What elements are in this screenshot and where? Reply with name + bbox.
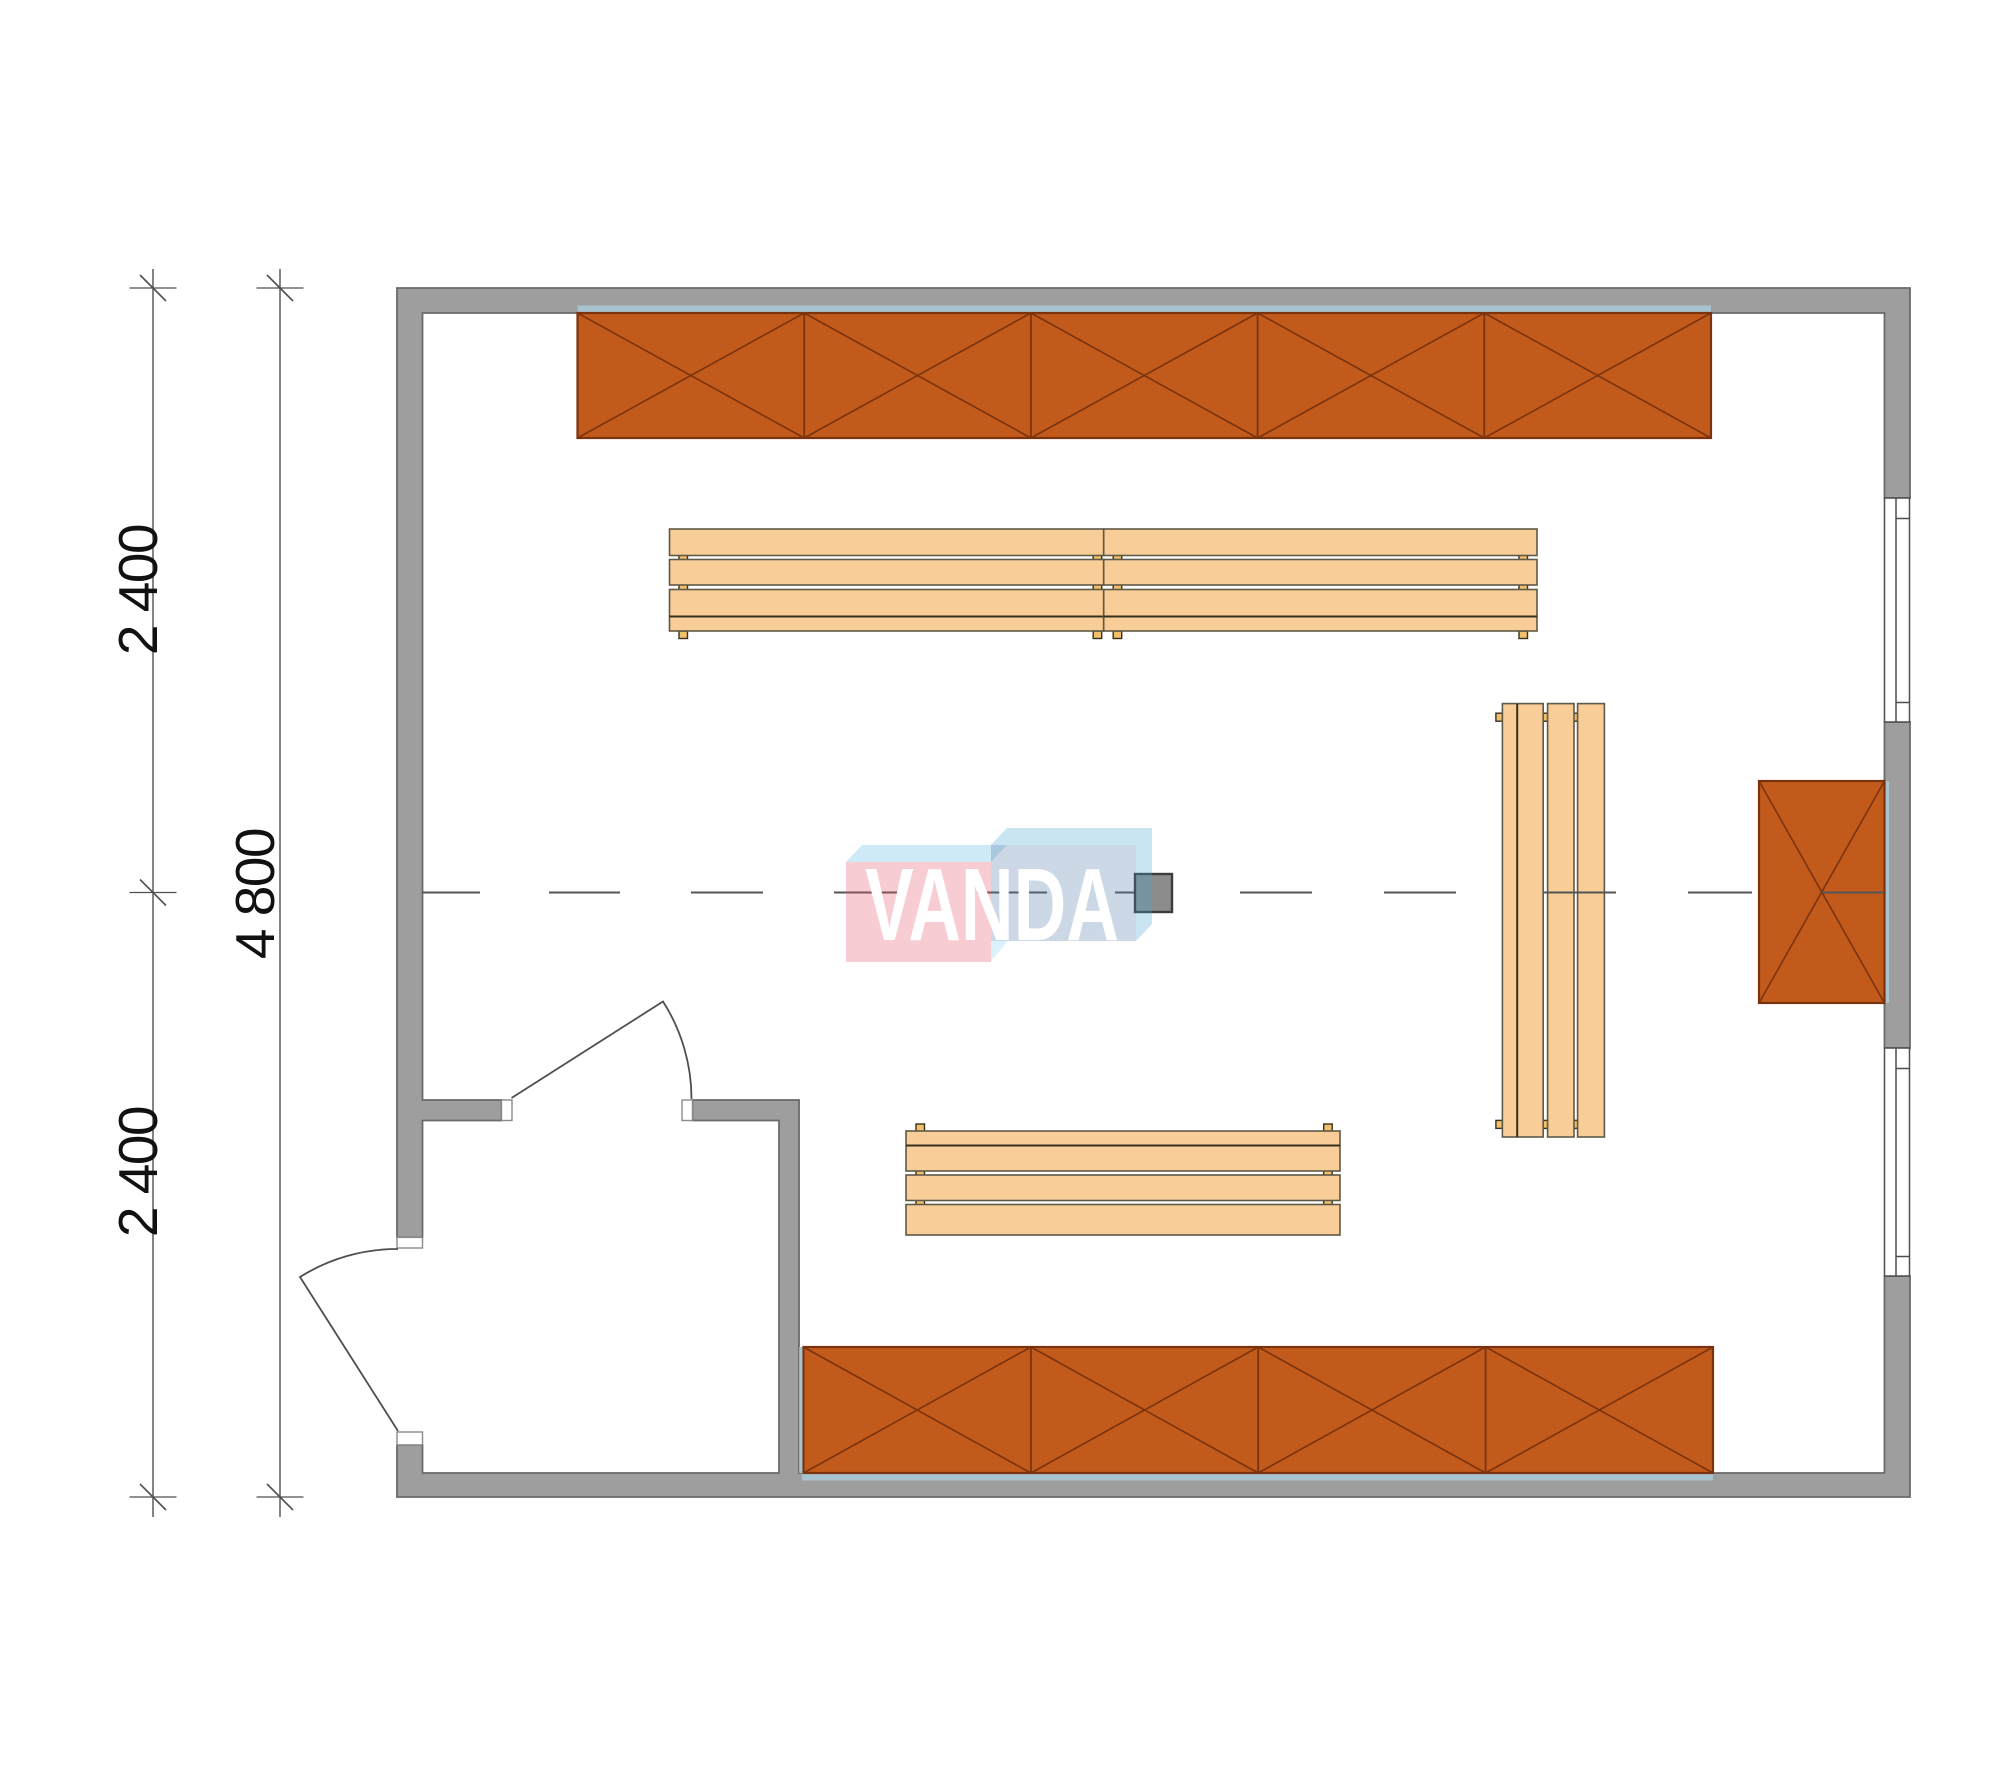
svg-text:4 800: 4 800 [224, 829, 286, 959]
svg-text:2 400: 2 400 [107, 525, 169, 655]
svg-text:VANDA: VANDA [865, 847, 1119, 962]
svg-text:2 400: 2 400 [107, 1107, 169, 1237]
